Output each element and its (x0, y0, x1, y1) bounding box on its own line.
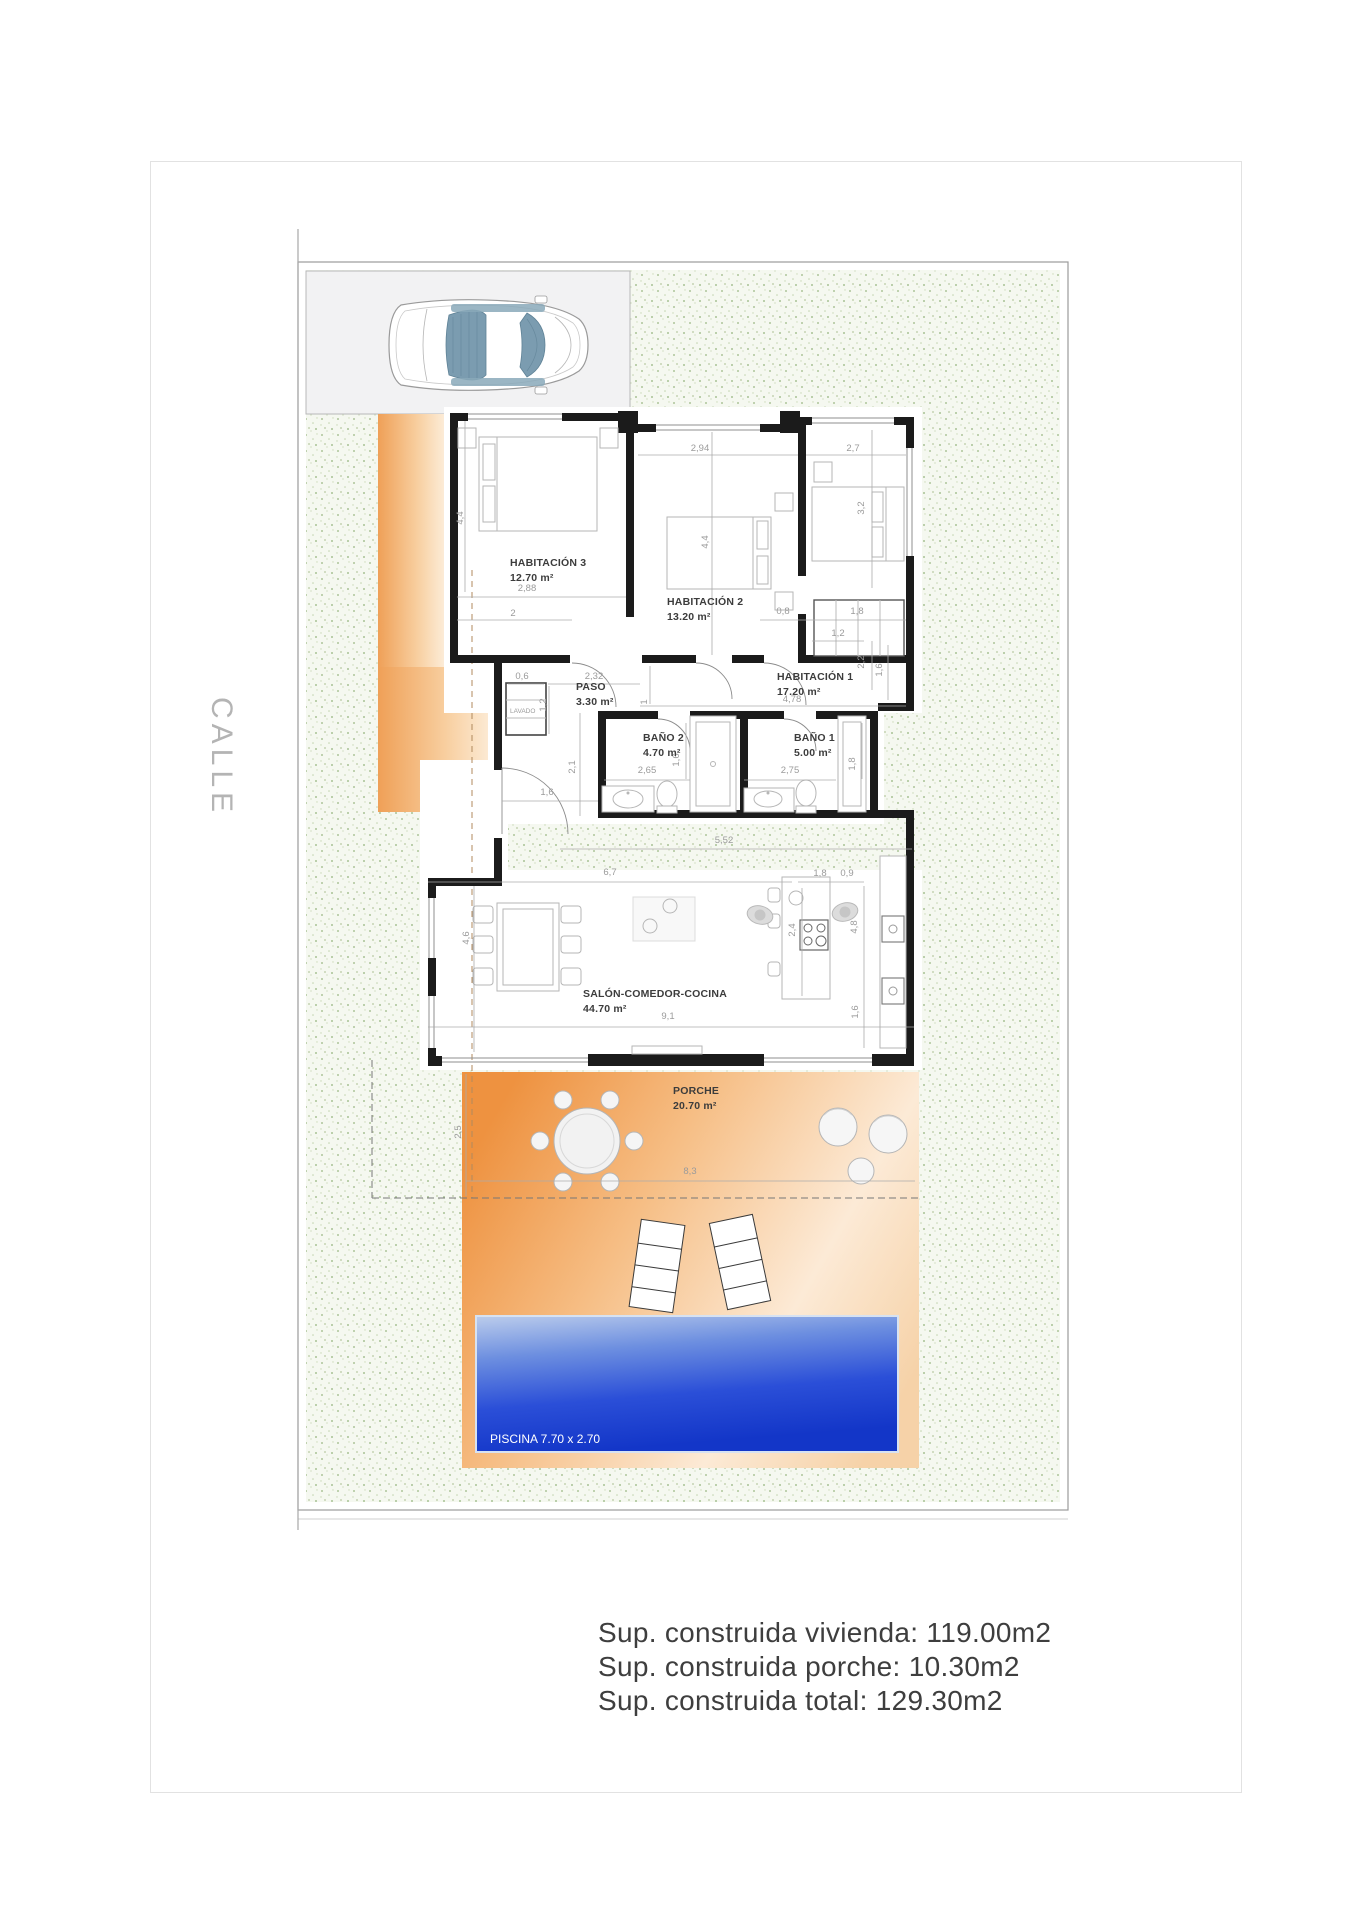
room-area-paso: 3.30 m² (576, 696, 614, 708)
room-label-hab3: HABITACIÓN 3 (510, 556, 586, 569)
room-area-bano2: 4.70 m² (643, 747, 681, 759)
dimension-label: 2,2 (856, 655, 867, 668)
room-label-porche: PORCHE (673, 1085, 719, 1097)
floor-plan-page: CALLE (0, 0, 1359, 1920)
dimension-label: 2,5 (453, 1125, 464, 1138)
dining-table (473, 903, 581, 991)
dimension-label: 2,4 (787, 923, 798, 936)
dimension-label: 0,8 (776, 606, 789, 617)
dimension-label: 2,75 (781, 765, 800, 776)
kitchen-counter (880, 856, 906, 1048)
dimension-label: 2,7 (846, 443, 859, 454)
summary-porche: Sup. construida porche: 10.30m2 (598, 1650, 1051, 1684)
dimension-label: 1,8 (847, 757, 858, 770)
bed-hab3 (458, 428, 618, 531)
room-label-salon: SALÓN-COMEDOR-COCINA (583, 987, 727, 1000)
dimension-label: 2,88 (518, 583, 537, 594)
room-area-salon: 44.70 m² (583, 1003, 627, 1015)
dimension-label: 3,2 (856, 501, 867, 514)
dimension-label: 1,8 (850, 606, 863, 617)
dimension-label: 1,2 (831, 628, 844, 639)
dimension-label: 8,3 (683, 1166, 696, 1177)
dimension-label: 1,2 (538, 698, 549, 711)
dimension-label: 1 (639, 699, 650, 704)
dimension-label: 4,4 (455, 511, 466, 524)
room-area-porche: 20.70 m² (673, 1100, 717, 1112)
dimension-label: 4,6 (461, 931, 472, 944)
room-label-hab1: HABITACIÓN 1 (777, 670, 853, 683)
summary-block: Sup. construida vivienda: 119.00m2 Sup. … (598, 1616, 1051, 1718)
dimension-label: 6,7 (603, 867, 616, 878)
room-area-bano1: 5.00 m² (794, 747, 832, 759)
dimension-label: 1,6 (540, 787, 553, 798)
dimension-label: 2,1 (567, 760, 578, 773)
dimension-label: 2,65 (638, 765, 657, 776)
dimension-label: 0,9 (840, 868, 853, 879)
tv-bench (632, 1046, 702, 1054)
room-label-bano2: BAÑO 2 (643, 731, 684, 744)
room-label-hab2: HABITACIÓN 2 (667, 595, 743, 608)
room-label-lavado: LAVADO (510, 708, 535, 715)
room-label-paso: PASO (576, 681, 606, 693)
dimension-label: 4,4 (700, 535, 711, 548)
pool: PISCINA 7.70 x 2.70 (476, 1316, 898, 1452)
dimension-label: 1,6 (850, 1005, 861, 1018)
dimension-label: 0,6 (515, 671, 528, 682)
dimension-label: 5,52 (715, 835, 734, 846)
room-area-hab2: 13.20 m² (667, 611, 711, 623)
dimension-label: 2,94 (691, 443, 710, 454)
room-label-bano1: BAÑO 1 (794, 731, 835, 744)
dimension-label: 2 (510, 608, 515, 619)
summary-vivienda: Sup. construida vivienda: 119.00m2 (598, 1616, 1051, 1650)
dimension-label: 1,6 (874, 663, 885, 676)
car-icon (389, 296, 588, 394)
room-area-hab3: 12.70 m² (510, 572, 554, 584)
dimension-label: 9,1 (661, 1011, 674, 1022)
sitting-area (633, 897, 695, 941)
summary-total: Sup. construida total: 129.30m2 (598, 1684, 1051, 1718)
room-area-hab1: 17.20 m² (777, 686, 821, 698)
pool-label: PISCINA 7.70 x 2.70 (490, 1432, 600, 1446)
dimension-label: 1,8 (813, 868, 826, 879)
dimension-label: 4,8 (849, 920, 860, 933)
